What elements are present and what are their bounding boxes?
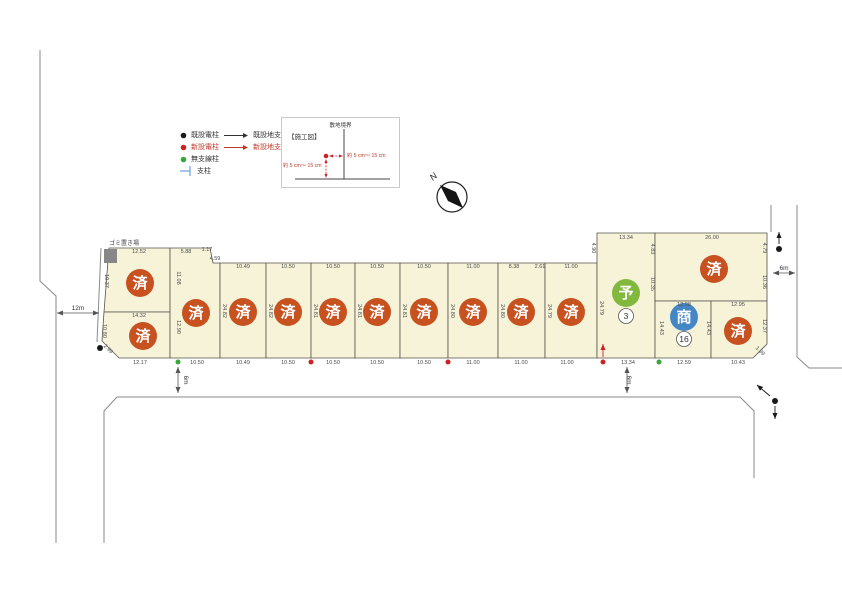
dim-label: 10.50 (281, 264, 295, 270)
dim-label: 5.88 (181, 249, 192, 255)
dim-label: 12.37 (761, 319, 767, 333)
compass-north-label: N (428, 170, 440, 182)
status-kanji-label: 予 (618, 285, 633, 302)
plot-number-label: 3 (624, 311, 629, 321)
road-edge (97, 248, 101, 342)
no-guy-pole-dot-icon (180, 156, 187, 163)
pole-red-dot (446, 360, 451, 365)
legend-row-no-guy-pole: 無支線柱 (180, 154, 288, 164)
dim-label: 24.81 (312, 304, 318, 318)
dim-label: 14.32 (132, 313, 146, 319)
legend-row-existing-pole: 既設電柱 既設地支線 (180, 130, 288, 140)
waste-area-square (104, 249, 117, 263)
dim-label: 24.80 (499, 304, 505, 318)
new-pole-dot-icon (180, 144, 187, 151)
dim-label: 24.82 (221, 304, 227, 318)
pole-red-dot (309, 360, 314, 365)
dim-label: 10.49 (236, 360, 250, 366)
dim-label: 10.35 (649, 277, 655, 291)
dim-label: 24.81 (401, 304, 407, 318)
dim-label: 11.00 (514, 360, 527, 366)
dim-label: 11.08 (175, 271, 181, 284)
dim-label: 10.50 (417, 360, 431, 366)
dim-label: 10.36 (761, 275, 767, 289)
road-edge (797, 205, 842, 368)
plot-12-reserved[interactable]: 予3 (597, 233, 655, 358)
dim-label: 12.17 (133, 360, 147, 366)
new-guy-line-arrow-icon (223, 144, 249, 151)
dim-label: 12.59 (677, 360, 691, 366)
existing-pole-dot-icon (180, 132, 187, 139)
arrowhead-right-icon (339, 155, 343, 158)
dim-label: 24.79 (546, 304, 552, 318)
status-kanji-label: 済 (132, 274, 148, 292)
pole-black-dot (97, 345, 103, 351)
offset-note-horizontal: 約 5 cm〜 15 cm (347, 152, 386, 159)
site-plan-canvas: 済済済済済済済済済済済予3済商16済 12.525.881.174.5910.4… (0, 0, 842, 600)
dim-label: 26.00 (705, 235, 719, 241)
status-kanji-label: 済 (416, 303, 432, 321)
status-kanji-label: 済 (188, 304, 204, 322)
pole-red-dot (601, 360, 606, 365)
existing-guy-line-arrow-icon (223, 132, 249, 139)
dim-label: 4.83 (649, 244, 655, 255)
status-kanji-label: 済 (280, 303, 296, 321)
new-pole-dot-icon (324, 154, 329, 159)
dim-label: 24.81 (356, 304, 362, 318)
dim-label: 6m (625, 375, 632, 384)
dim-label: 10.50 (190, 360, 204, 366)
legend-row-support: 支柱 (180, 166, 288, 176)
dim-label: 13.34 (621, 360, 635, 366)
legend-label: 無支線柱 (191, 154, 219, 164)
plot-13-sold[interactable]: 済 (655, 233, 767, 301)
status-kanji-label: 済 (135, 327, 151, 345)
status-kanji-label: 済 (563, 303, 579, 321)
dim-label: 24.79 (598, 301, 604, 315)
dim-label: 4.90 (590, 243, 596, 254)
dim-label: 10.50 (417, 264, 431, 270)
dim-label: 12.52 (132, 249, 146, 255)
pole-green-dot (176, 360, 181, 365)
dim-label: 11.00 (466, 264, 479, 270)
dim-label: 4.79 (761, 243, 767, 254)
dim-label: 1.17 (202, 247, 213, 253)
dim-label: 10.43 (731, 360, 745, 366)
dim-label: 6m (182, 375, 189, 384)
construction-detail-box: 敷地境界 【施工図】 約 5 cm〜 15 cm 約 5 cm〜 15 cm (281, 117, 400, 188)
dim-label: 12m (72, 305, 85, 312)
road-edge (40, 50, 56, 543)
dim-label: 12.95 (731, 302, 745, 308)
status-kanji-label: 済 (513, 303, 529, 321)
compass: N (428, 170, 467, 212)
dim-label: 24.82 (267, 304, 273, 318)
arrowhead-left-icon (329, 155, 333, 158)
legend-row-new-pole: 新設電柱 新設地支線 (180, 142, 288, 152)
status-kanji-label: 済 (235, 303, 251, 321)
pole-black-dot (772, 398, 778, 404)
dim-label: 12.98 (677, 302, 691, 308)
dim-label: 11.00 (564, 264, 577, 270)
status-kanji-label: 済 (369, 303, 385, 321)
dim-label: 24.80 (449, 304, 455, 318)
legend-label: 支柱 (197, 166, 211, 176)
dim-label: 10.50 (326, 264, 340, 270)
arrowhead-up-icon (325, 159, 328, 163)
dim-label: 14.43 (658, 321, 664, 335)
site-plan-drawing: 済済済済済済済済済済済予3済商16済 12.525.881.174.5910.4… (0, 0, 842, 600)
status-kanji-label: 商 (676, 308, 691, 326)
pole-black-dot (776, 246, 782, 252)
dim-label: 10.49 (236, 264, 250, 270)
support-pole-symbol-icon (180, 165, 193, 177)
road-edge (104, 397, 754, 543)
dim-label: 10.50 (326, 360, 340, 366)
dim-label: 12.90 (175, 320, 181, 334)
dim-label: 10.80 (101, 324, 107, 338)
dim-label: 11.00 (466, 360, 479, 366)
dim-label: 10.50 (370, 360, 384, 366)
pole-green-dot (657, 360, 662, 365)
dim-label: 4.59 (210, 256, 221, 262)
guy-line-arrow (757, 385, 770, 396)
plot-03-sold[interactable]: 済 (170, 248, 220, 358)
dim-label: 2.61 (535, 264, 546, 270)
dim-label: ゴミ置き場 (109, 239, 139, 247)
legend-label: 新設電柱 (191, 142, 219, 152)
dim-label: 10.37 (103, 274, 109, 288)
status-kanji-label: 済 (706, 260, 722, 278)
status-kanji-label: 済 (325, 303, 341, 321)
status-kanji-label: 済 (465, 303, 481, 321)
plot-number-label: 16 (679, 334, 689, 344)
offset-note-vertical: 約 5 cm〜 15 cm (283, 162, 322, 169)
status-kanji-label: 済 (730, 322, 746, 340)
arrowhead-down-icon (325, 174, 328, 178)
dim-label: 14.43 (705, 321, 711, 335)
dim-label: 10.50 (281, 360, 295, 366)
dim-label: 6m (779, 265, 788, 272)
dim-label: 11.00 (560, 360, 573, 366)
legend: 既設電柱 既設地支線 新設電柱 新設地支線 無支線柱 支柱 (180, 130, 288, 178)
dim-label: 13.34 (619, 235, 633, 241)
dim-label: 10.50 (370, 264, 384, 270)
legend-label: 既設電柱 (191, 130, 219, 140)
dim-label: 8.38 (509, 264, 520, 270)
